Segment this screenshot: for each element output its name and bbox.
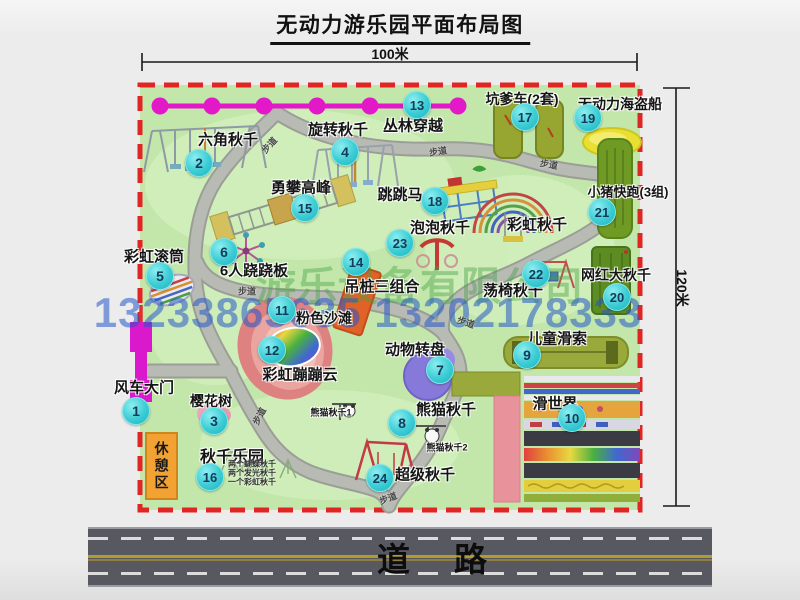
attraction-badge-7: 7	[426, 356, 454, 384]
attraction-label-12: 彩虹蹦蹦云	[262, 368, 337, 383]
trail-label-3: 步道	[539, 156, 559, 172]
attraction-label-24: 超级秋千	[395, 468, 455, 483]
attraction-badge-21: 21	[588, 198, 616, 226]
attraction-badge-22: 22	[522, 260, 550, 288]
trail-label-5: 步道	[455, 313, 476, 331]
attraction-label-20: 网红大秋千	[581, 268, 651, 282]
trail-label-4: 步道	[238, 285, 256, 298]
attraction-badge-5: 5	[146, 262, 174, 290]
attraction-badge-13: 13	[403, 91, 431, 119]
attraction-label-8: 熊猫秋千	[416, 403, 476, 418]
attraction-label-23: 泡泡秋千	[410, 221, 470, 236]
attraction-label-1: 风车大门	[114, 381, 174, 396]
attraction-badge-20: 20	[603, 283, 631, 311]
attraction-label-11: 粉色沙滩	[296, 311, 352, 325]
attraction-badge-11: 11	[268, 296, 296, 324]
label-panda-swing-1: 熊猫秋千1	[310, 409, 351, 418]
attraction-label-2: 六角秋千	[198, 133, 258, 148]
labels-layer: 风车大门1六角秋千2樱花树3旋转秋千4彩虹滚筒56人跷跷板6动物转盘7熊猫秋千8…	[0, 0, 800, 600]
attraction-label-4: 旋转秋千	[308, 123, 368, 138]
attraction-badge-14: 14	[342, 248, 370, 276]
attraction-label-14: 吊桩三组合	[344, 280, 419, 295]
attraction-label-18: 跳跳马	[377, 188, 422, 203]
attraction-label-13: 丛林穿越	[383, 119, 443, 134]
attraction-badge-15: 15	[291, 194, 319, 222]
trail-label-1: 步道	[258, 134, 280, 156]
label-panda-swing-2: 熊猫秋千2	[426, 444, 467, 453]
attraction-label-6: 6人跷跷板	[220, 264, 288, 279]
label-rainbow-swing: 彩虹秋千	[507, 218, 567, 233]
attraction-badge-19: 19	[574, 104, 602, 132]
road: 道路	[88, 527, 712, 587]
attraction-badge-24: 24	[366, 464, 394, 492]
attraction-badge-9: 9	[513, 341, 541, 369]
attraction-badge-8: 8	[388, 409, 416, 437]
attraction-badge-3: 3	[200, 407, 228, 435]
attraction-badge-23: 23	[386, 229, 414, 257]
attraction-badge-16: 16	[196, 463, 224, 491]
attraction-badge-18: 18	[421, 187, 449, 215]
attraction-label-3: 樱花树	[190, 394, 232, 408]
attraction-label-15: 勇攀高峰	[271, 181, 331, 196]
attraction-badge-6: 6	[210, 238, 238, 266]
attraction-badge-4: 4	[331, 138, 359, 166]
attraction-label-7: 动物转盘	[385, 343, 445, 358]
attraction-label-21: 小猪快跑(3组)	[588, 186, 669, 199]
trail-label-6: 步道	[249, 405, 269, 427]
trail-label-2: 步道	[428, 143, 448, 158]
attraction-badge-10: 10	[558, 404, 586, 432]
attraction-badge-17: 17	[511, 103, 539, 131]
swing-park-note-3: 一个彩虹秋千	[228, 477, 276, 488]
attraction-badge-12: 12	[258, 336, 286, 364]
attraction-badge-2: 2	[185, 149, 213, 177]
attraction-badge-1: 1	[122, 397, 150, 425]
park-layout-plan: 游乐设备有限公司 13233865635 13202178333 无动力游乐园平…	[0, 0, 800, 600]
road-label: 道路	[333, 533, 531, 581]
